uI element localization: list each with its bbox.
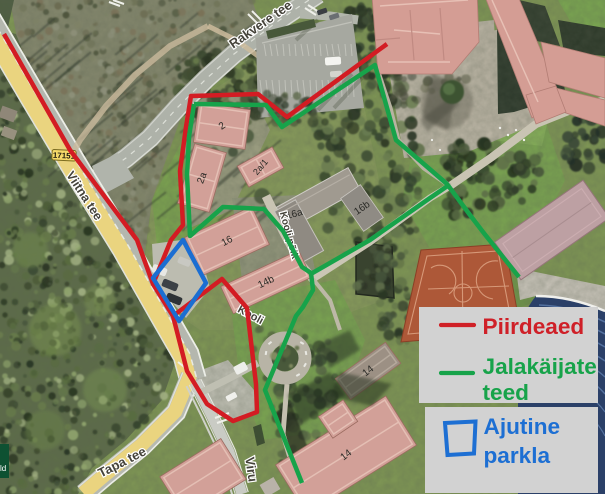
svg-text:parkla: parkla	[484, 443, 551, 468]
svg-text:Piirdeaed: Piirdeaed	[483, 314, 585, 339]
svg-text:teed: teed	[483, 380, 529, 405]
svg-text:Jalakäijate: Jalakäijate	[483, 354, 597, 379]
svg-text:Ajutine: Ajutine	[484, 414, 561, 439]
svg-text:ld: ld	[0, 464, 6, 473]
